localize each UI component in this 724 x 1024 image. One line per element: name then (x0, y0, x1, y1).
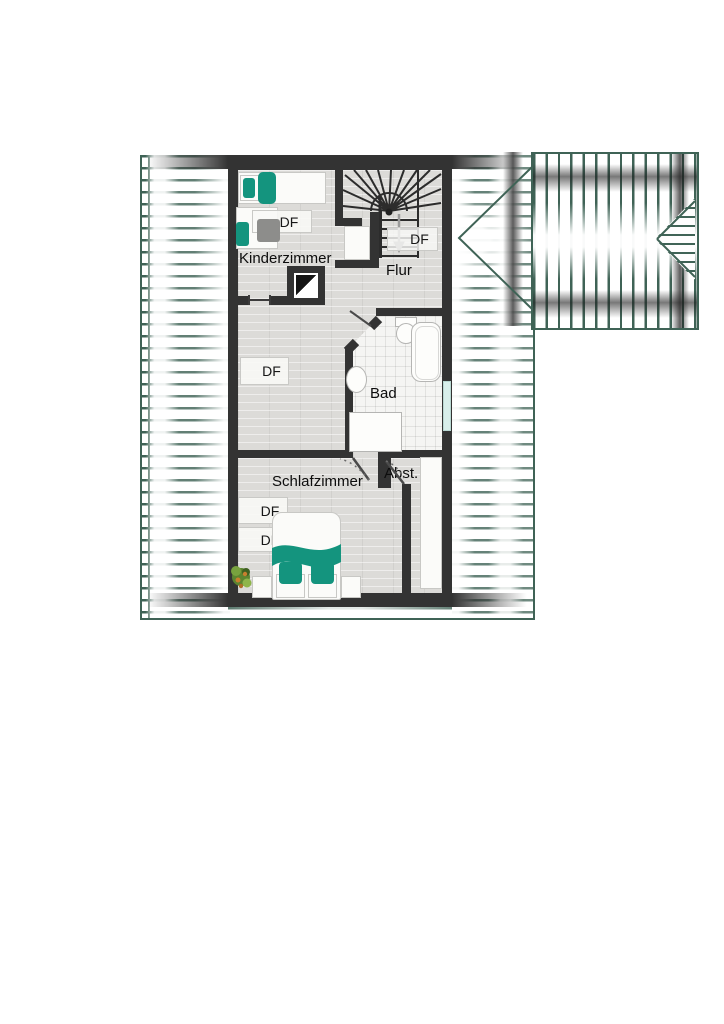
closet (420, 457, 442, 589)
wall-shadow-bottom-right (452, 593, 533, 607)
room-label-abstellraum: Abst. (384, 465, 418, 482)
bed-single-pillow (243, 178, 255, 198)
wall-niche-bottom (335, 260, 379, 268)
df-window-flur: DF (387, 227, 438, 251)
bathtub-inner (415, 326, 439, 380)
wall-shadow-top-left (140, 155, 228, 169)
wall-abst-left (402, 484, 411, 593)
df-label: DF (280, 214, 299, 230)
wall-shadow-bottom-left (140, 593, 228, 607)
wall-stairs-nub (343, 218, 362, 226)
chimney (287, 266, 325, 305)
stair-niche (344, 226, 370, 260)
room-label-kinderzimmer: Kinderzimmer (239, 250, 332, 267)
desk-computer (257, 219, 280, 242)
roof-eave-bottom (228, 607, 452, 620)
wall-kinderzimmer-b (270, 296, 288, 305)
desk-chair (236, 222, 249, 246)
nightstand-right (341, 576, 361, 598)
wall-top (228, 155, 452, 170)
wall-kinderzimmer-a (238, 296, 249, 305)
shower (349, 412, 402, 452)
window-bad (443, 381, 451, 431)
df-label: DF (410, 231, 429, 247)
bathtub (411, 322, 441, 382)
wall-schlafzimmer-top (228, 450, 442, 458)
room-label-bad: Bad (370, 385, 397, 402)
room-label-flur: Flur (386, 262, 412, 279)
roof-slope-left (140, 155, 230, 620)
wall-shadow-top-right (452, 155, 528, 169)
bed-single-blanket (258, 172, 276, 204)
nightstand-left (252, 576, 272, 598)
bed-pillow-right (311, 562, 334, 584)
floor-plan: DF DF DF DF DF Kinderzimmer Flur Bad Sch… (0, 0, 724, 1024)
room-label-schlafzimmer: Schlafzimmer (272, 473, 363, 490)
wall-stairs-left (335, 170, 343, 226)
sink (346, 366, 367, 393)
wing-shadow-left (503, 152, 523, 326)
wall-bad-top (376, 308, 442, 316)
bed-pillow-left (279, 562, 302, 584)
df-label: DF (262, 363, 281, 379)
df-window-diele: DF (240, 357, 289, 385)
chimney-symbol (294, 273, 318, 298)
